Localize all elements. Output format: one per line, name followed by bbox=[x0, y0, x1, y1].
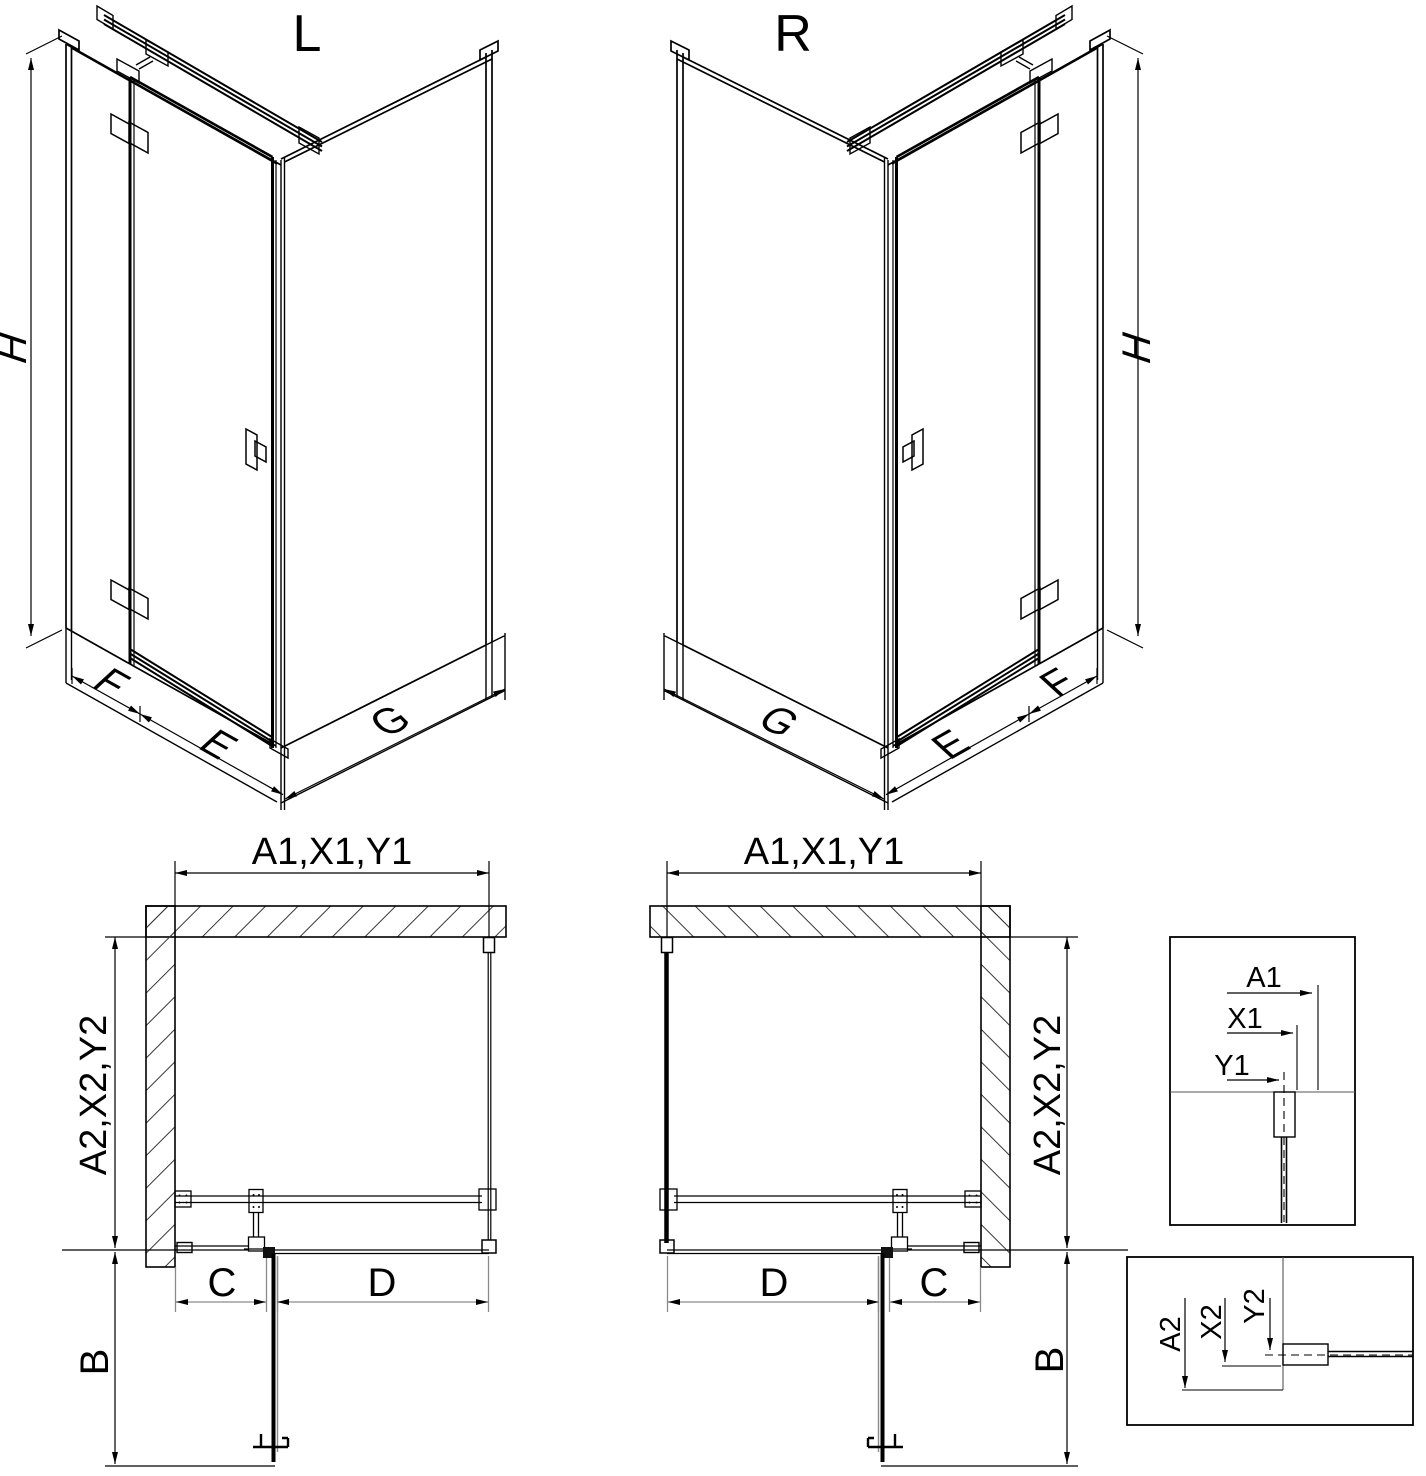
detail-depth-y2-label: Y2 bbox=[1239, 1288, 1271, 1323]
iso-right-title: R bbox=[774, 5, 812, 63]
plan-left-d-label: D bbox=[368, 1261, 397, 1305]
iso-left-title: L bbox=[293, 5, 322, 63]
plan-right-depth-label: A2,X2,Y2 bbox=[1027, 1015, 1069, 1176]
detail-depth-a2-label: A2 bbox=[1155, 1316, 1187, 1351]
plan-view-right bbox=[650, 861, 1010, 1462]
plan-left-b-label: B bbox=[73, 1349, 117, 1376]
iso-right-height-label: H bbox=[1114, 326, 1159, 369]
detail-width-a1-label: A1 bbox=[1246, 962, 1281, 994]
detail-depth-x2-label: X2 bbox=[1196, 1304, 1228, 1339]
plan-right-c-label: C bbox=[920, 1261, 949, 1305]
plan-left-width-label: A1,X1,Y1 bbox=[252, 831, 413, 873]
shower-enclosure-diagram: L H F E G R H G E F A1,X1,Y1 A2,X2,Y2 C … bbox=[0, 0, 1426, 1476]
technical-drawing-sheet: L H F E G R H G E F A1,X1,Y1 A2,X2,Y2 C … bbox=[0, 0, 1426, 1476]
plan-right-b-label: B bbox=[1028, 1347, 1072, 1374]
iso-left-e-label: E bbox=[190, 722, 248, 767]
detail-width-y1-label: Y1 bbox=[1214, 1050, 1249, 1082]
iso-left-height-label: H bbox=[0, 326, 35, 369]
detail-width-x1-label: X1 bbox=[1227, 1003, 1262, 1035]
plan-left-depth-label: A2,X2,Y2 bbox=[73, 1015, 115, 1176]
plan-left-c-label: C bbox=[208, 1261, 237, 1305]
iso-right-e-label: E bbox=[921, 722, 979, 767]
plan-right-width-label: A1,X1,Y1 bbox=[744, 831, 905, 873]
plan-view-left bbox=[146, 861, 506, 1462]
plan-right-d-label: D bbox=[760, 1261, 789, 1305]
